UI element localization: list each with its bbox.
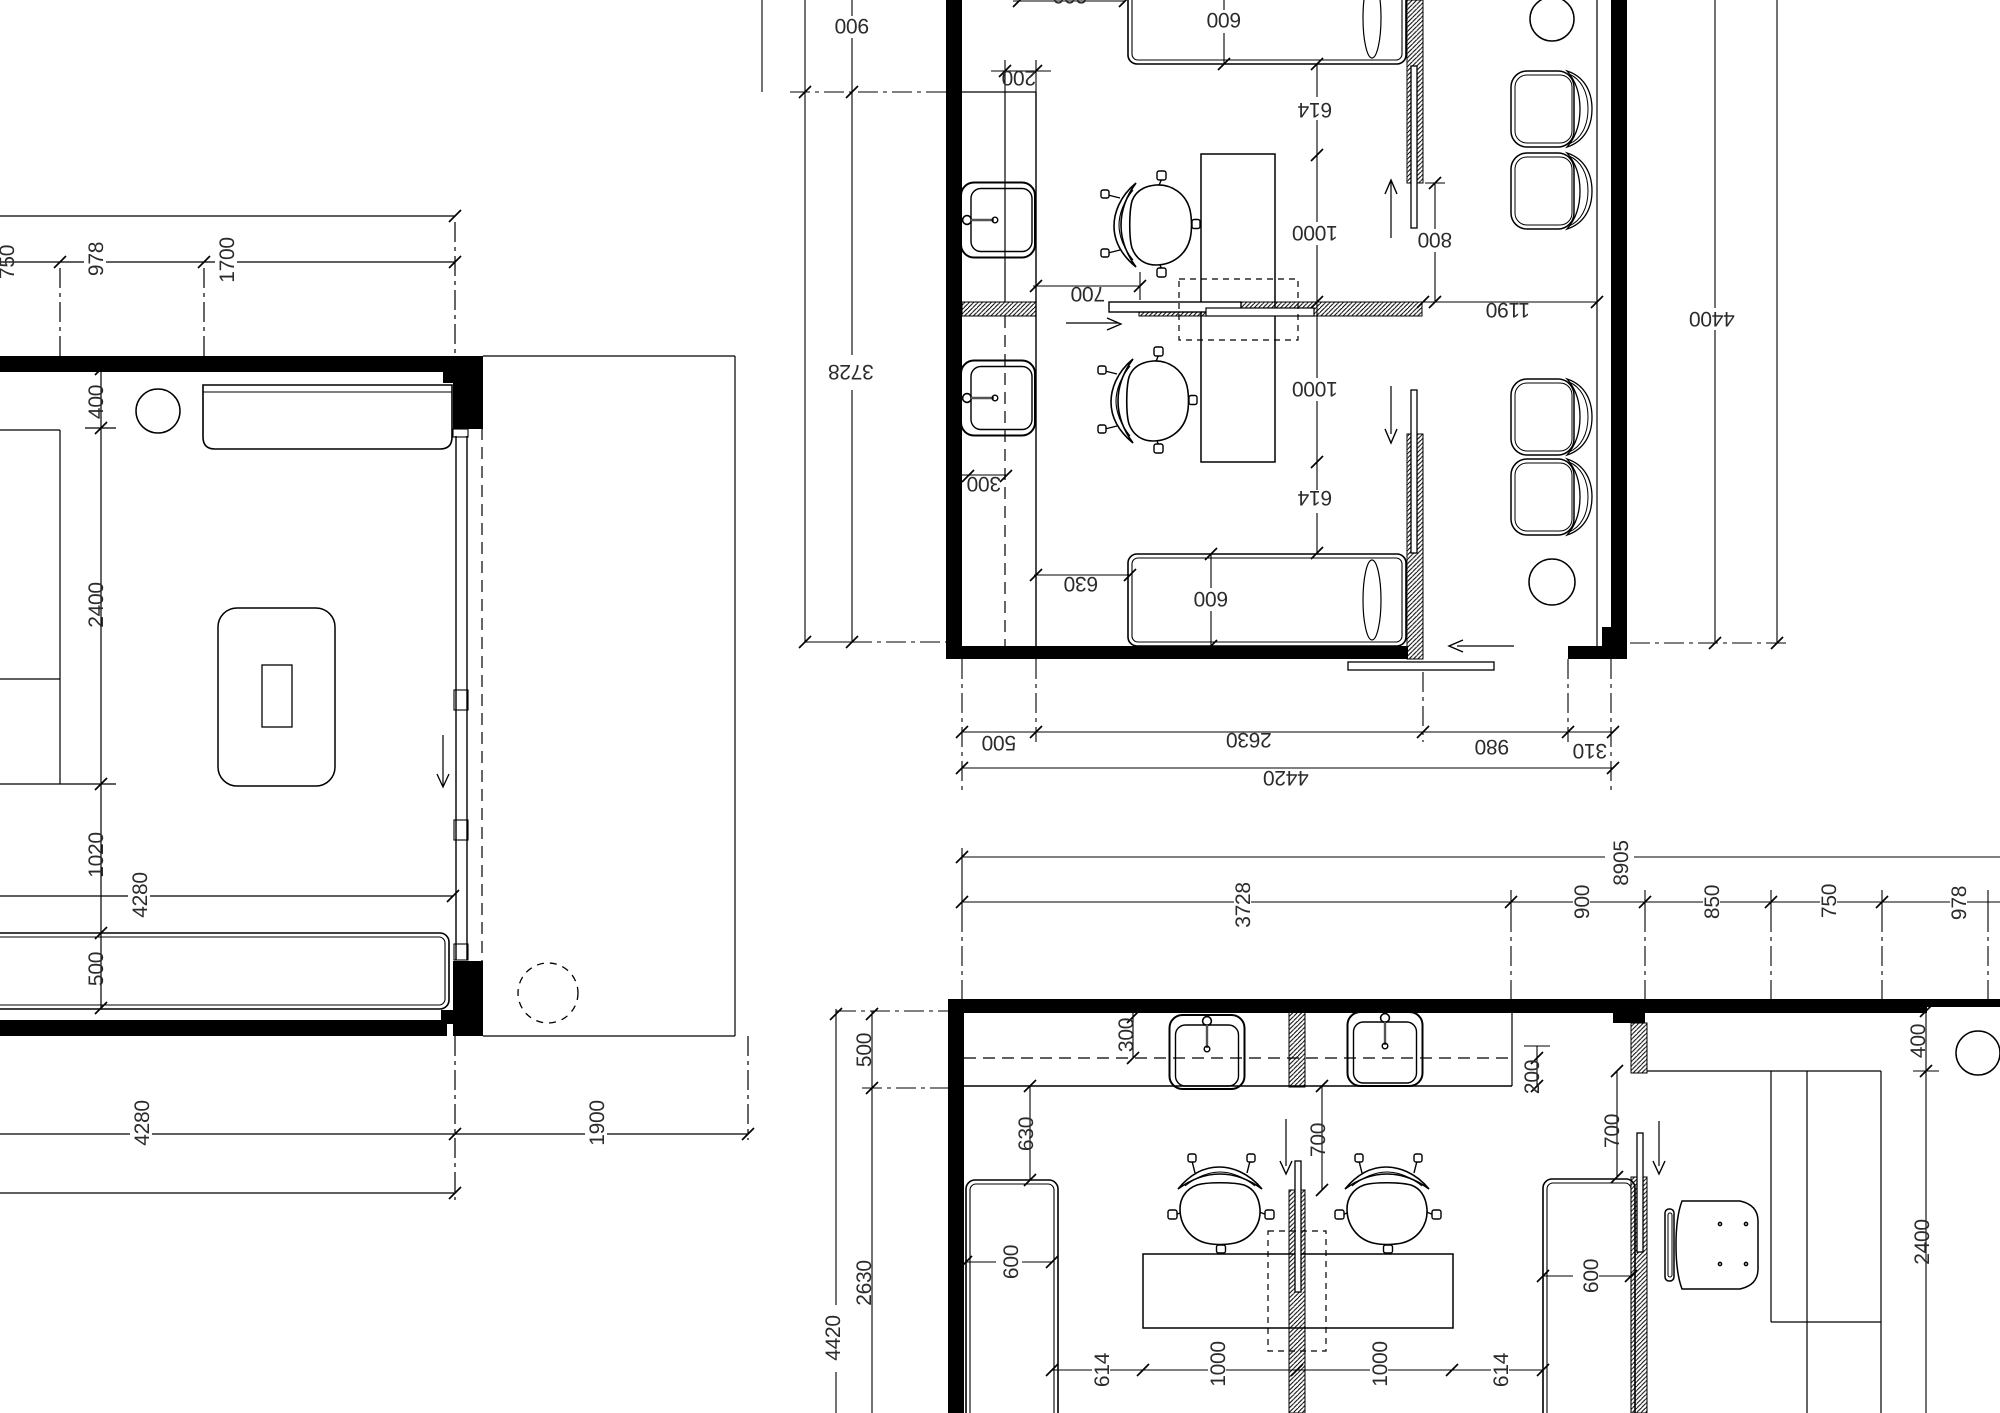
- svg-text:600: 600: [1000, 1245, 1023, 1279]
- svg-text:800: 800: [1418, 228, 1452, 251]
- svg-text:2400: 2400: [85, 582, 108, 628]
- svg-text:400: 400: [85, 385, 108, 419]
- svg-text:980: 980: [1475, 735, 1509, 758]
- svg-text:200: 200: [1002, 66, 1036, 89]
- svg-text:600: 600: [1580, 1259, 1603, 1293]
- svg-text:700: 700: [1307, 1123, 1330, 1157]
- svg-text:310: 310: [1573, 739, 1607, 762]
- svg-text:3728: 3728: [828, 360, 874, 383]
- svg-text:4400: 4400: [1689, 307, 1735, 330]
- svg-text:200: 200: [1521, 1060, 1544, 1094]
- svg-text:614: 614: [1297, 98, 1332, 121]
- svg-text:978: 978: [85, 242, 108, 276]
- svg-text:614: 614: [1490, 1352, 1513, 1387]
- svg-text:2630: 2630: [853, 1260, 876, 1306]
- svg-text:630: 630: [1064, 572, 1098, 595]
- svg-text:614: 614: [1091, 1352, 1114, 1387]
- svg-text:600: 600: [1194, 587, 1228, 610]
- svg-text:900: 900: [1571, 885, 1594, 919]
- svg-text:1000: 1000: [1369, 1341, 1392, 1387]
- svg-text:4420: 4420: [1263, 766, 1309, 789]
- svg-text:750: 750: [0, 245, 19, 279]
- svg-text:1020: 1020: [85, 832, 108, 878]
- svg-text:500: 500: [85, 952, 108, 986]
- svg-text:1190: 1190: [1486, 298, 1530, 321]
- svg-text:850: 850: [1701, 885, 1724, 919]
- svg-text:630: 630: [1015, 1117, 1038, 1151]
- svg-text:300: 300: [1115, 1018, 1138, 1052]
- svg-text:600: 600: [1207, 8, 1241, 31]
- svg-text:4280: 4280: [131, 1100, 154, 1146]
- svg-text:4280: 4280: [129, 872, 152, 918]
- svg-text:700: 700: [1071, 282, 1105, 305]
- svg-text:1000: 1000: [1292, 377, 1338, 400]
- svg-text:900: 900: [835, 14, 869, 37]
- svg-text:500: 500: [853, 1033, 876, 1067]
- svg-text:978: 978: [1948, 886, 1971, 920]
- svg-text:750: 750: [1818, 884, 1841, 918]
- svg-text:1000: 1000: [1292, 221, 1338, 244]
- svg-text:2400: 2400: [1911, 1219, 1934, 1265]
- svg-text:1000: 1000: [1207, 1341, 1230, 1387]
- svg-text:2630: 2630: [1226, 728, 1272, 751]
- svg-text:4420: 4420: [822, 1315, 845, 1361]
- svg-text:500: 500: [982, 731, 1016, 754]
- svg-text:700: 700: [1601, 1114, 1624, 1148]
- svg-text:3728: 3728: [1232, 882, 1255, 928]
- svg-text:1700: 1700: [216, 237, 239, 283]
- svg-text:200: 200: [1053, 0, 1087, 7]
- svg-text:300: 300: [967, 472, 1001, 495]
- svg-text:8905: 8905: [1610, 840, 1633, 886]
- svg-text:400: 400: [1907, 1024, 1930, 1058]
- svg-text:1900: 1900: [586, 1100, 609, 1146]
- svg-text:614: 614: [1297, 486, 1332, 509]
